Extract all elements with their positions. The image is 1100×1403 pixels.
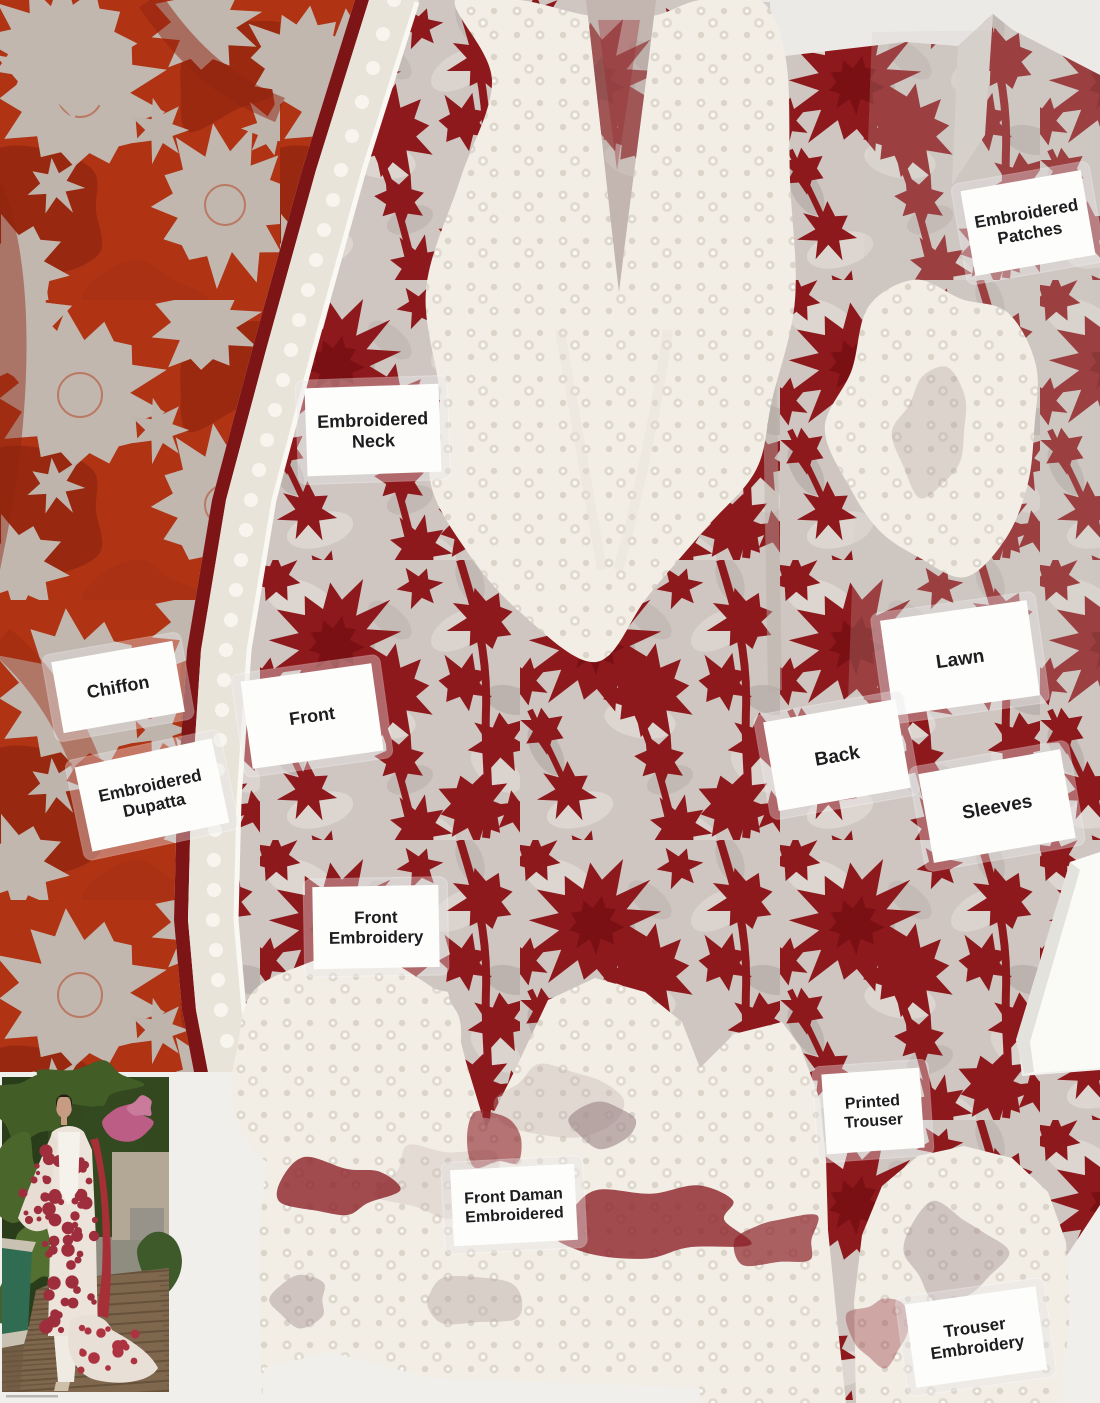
svg-text:Front: Front <box>354 908 398 928</box>
svg-text:Embroidered: Embroidered <box>317 408 429 432</box>
svg-text:Embroidery: Embroidery <box>329 927 424 948</box>
svg-text:Neck: Neck <box>352 430 397 452</box>
